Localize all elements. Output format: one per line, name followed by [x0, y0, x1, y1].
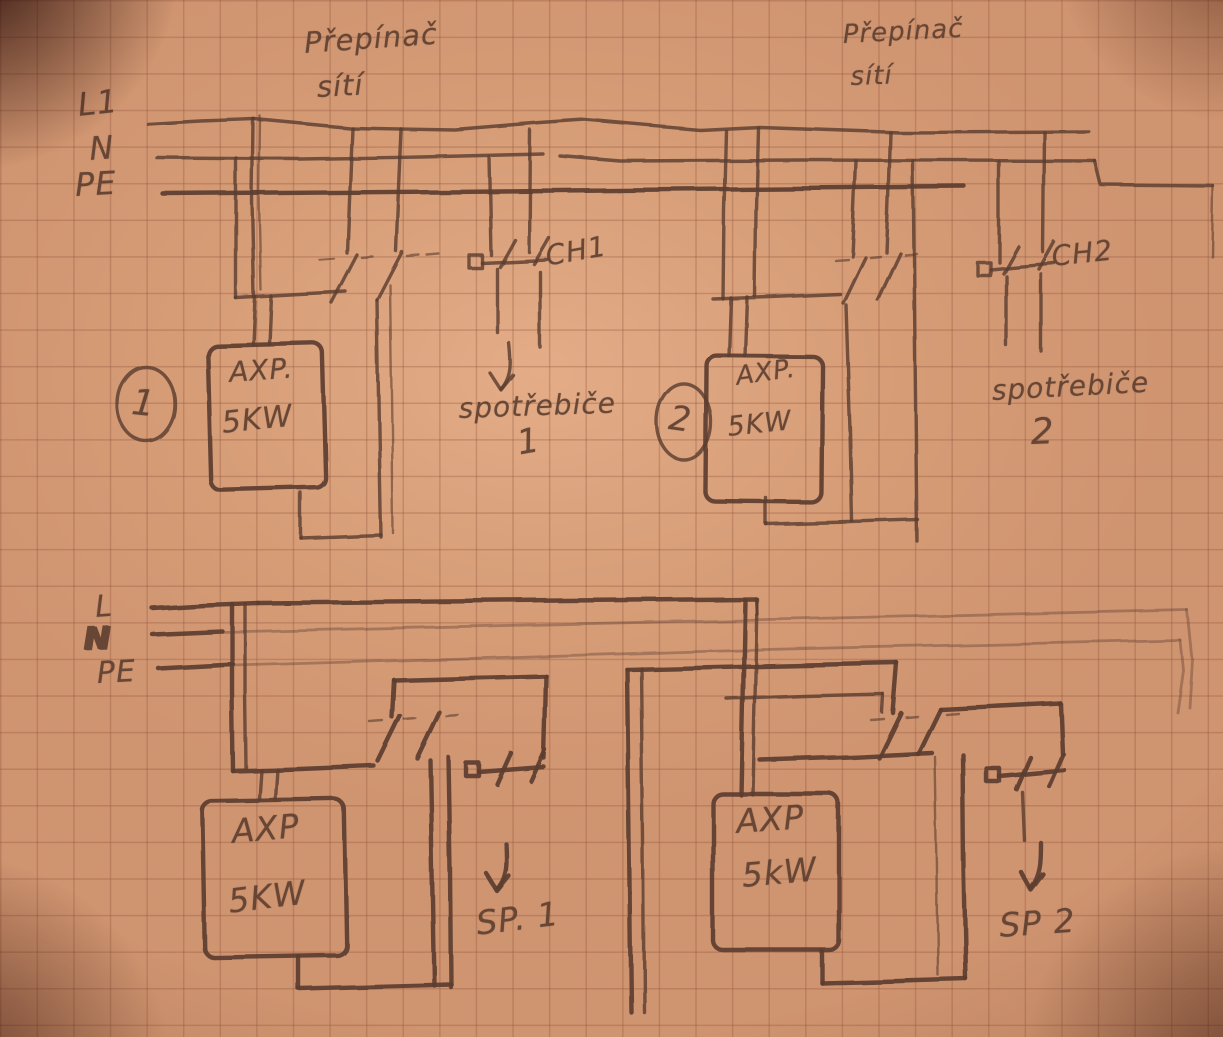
- device-box-3-line1: AXP: [230, 806, 301, 851]
- handwritten-labels: L1 N PE Přepínač sítí Přepínač sítí CH1 …: [0, 0, 1223, 1037]
- load2-label: spotřebiče: [991, 366, 1150, 407]
- load1-number: 1: [514, 420, 543, 463]
- bus-bottom-n-label: N: [83, 619, 112, 658]
- load1-label: spotřebiče: [458, 387, 616, 425]
- bus-top-n-label: N: [88, 128, 116, 168]
- device-box-1-line1: AXP.: [228, 352, 294, 389]
- selector2-caption-line2: sítí: [850, 61, 893, 92]
- sp1-label: SP. 1: [474, 894, 561, 943]
- sp2-label: SP 2: [998, 901, 1077, 945]
- device-box-2-line2: 5KW: [726, 405, 793, 443]
- bus-top-pe-label: PE: [74, 164, 117, 204]
- selector1-caption-line1: Přepínač: [303, 17, 439, 60]
- bus-top-l1-label: L1: [76, 82, 120, 124]
- bus-bottom-pe-label: PE: [96, 654, 137, 691]
- circuit2-number: 2: [666, 398, 694, 441]
- ch2-label: CH2: [1050, 234, 1115, 273]
- device-box-3-line2: 5KW: [226, 872, 308, 920]
- circuit1-number: 1: [130, 382, 158, 425]
- device-box-1-line2: 5KW: [220, 399, 295, 441]
- selector2-caption-line1: Přepínač: [842, 14, 964, 50]
- device-box-4-line2: 5kW: [740, 849, 819, 894]
- selector1-caption-line2: sítí: [316, 68, 364, 104]
- load2-number: 2: [1030, 411, 1055, 453]
- ch1-label: CH1: [543, 229, 609, 272]
- device-box-2-line1: AXP.: [734, 354, 798, 392]
- photo-of-hand-drawn-schematic: L1 N PE Přepínač sítí Přepínač sítí CH1 …: [0, 0, 1223, 1037]
- device-box-4-line1: AXP: [735, 797, 806, 841]
